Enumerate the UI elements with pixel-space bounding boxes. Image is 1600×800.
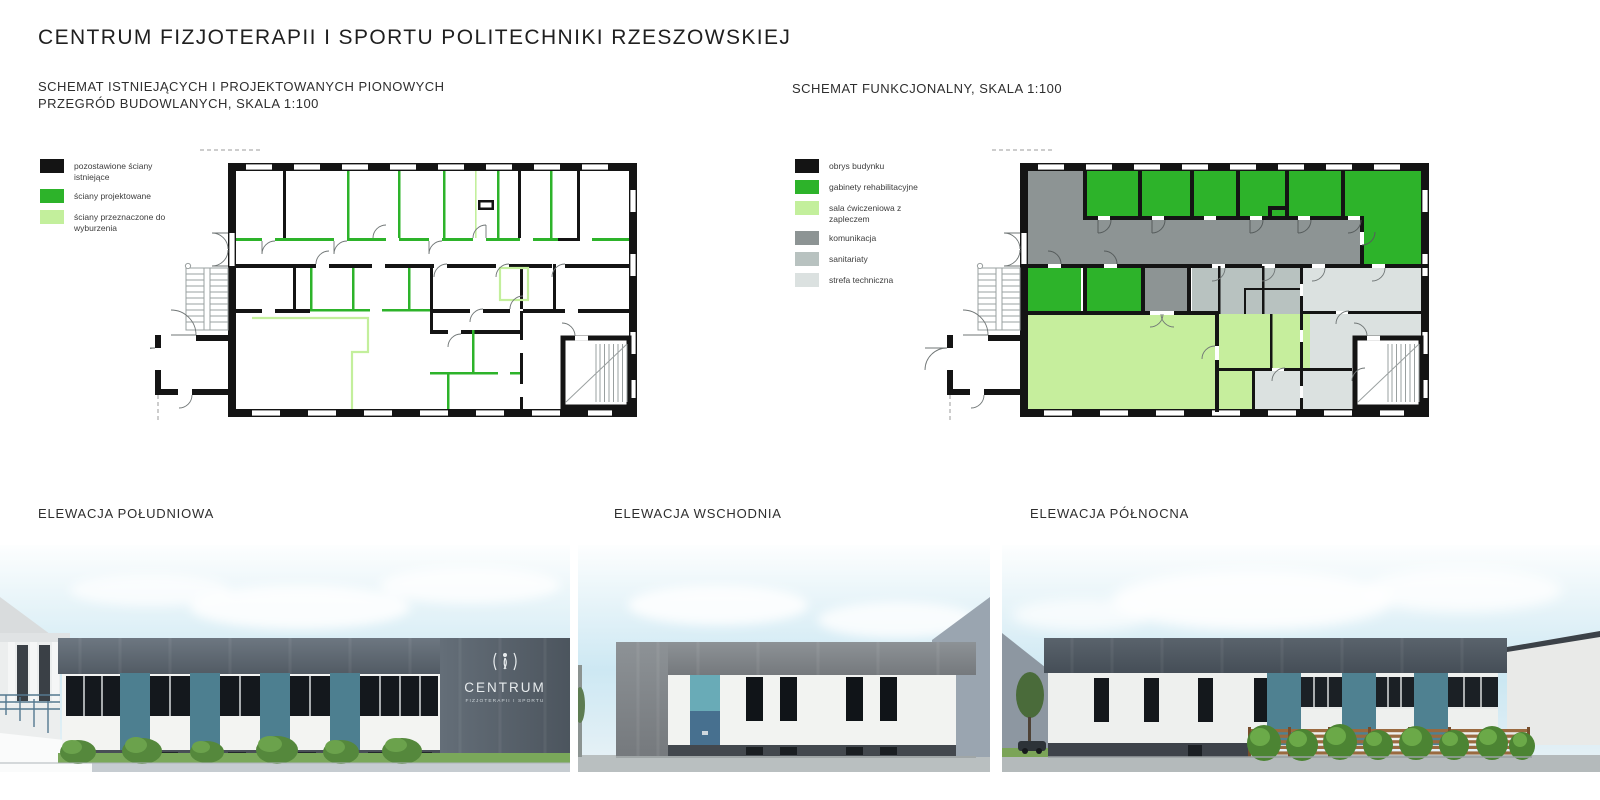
legend-swatch-existing-walls <box>40 159 64 173</box>
plan-annex <box>150 310 230 408</box>
floor-plan-functional-schematic <box>920 130 1430 427</box>
render-north-elevation <box>1002 545 1600 772</box>
right-background-building <box>1507 631 1600 745</box>
plan-corridor-walls <box>236 238 629 268</box>
window-strips <box>1301 677 1498 709</box>
functional-plan-drawing <box>920 130 1430 422</box>
legend-swatch-demolition-walls <box>40 210 64 224</box>
walls-schematic-title: SCHEMAT ISTNIEJĄCYCH I PROJEKTOWANYCH PI… <box>38 78 468 112</box>
functional-schematic-title: SCHEMAT FUNKCJONALNY, SKALA 1:100 <box>792 80 1212 97</box>
plan-annex <box>925 310 1022 408</box>
legend-swatch-sanitary <box>795 252 819 266</box>
plinth <box>668 745 956 757</box>
plan-exterior-stair <box>185 263 228 330</box>
plan-bottom-room-walls <box>430 311 523 409</box>
door-teal-panel <box>690 675 720 711</box>
render-south-elevation: CENTRUM FIZJOTERAPII I SPORTU <box>0 545 570 772</box>
elevation-label-north: ELEWACJA PÓŁNOCNA <box>1030 506 1189 521</box>
roof-band <box>1044 638 1507 673</box>
floor-plan-walls-schematic <box>150 130 650 427</box>
legend-swatch-outline <box>795 159 819 173</box>
plinth <box>1048 743 1250 757</box>
east-elevation-drawing <box>578 545 990 772</box>
north-elevation-drawing <box>1002 545 1600 772</box>
plan-stair-room <box>1355 336 1421 407</box>
walls-plan-drawing <box>150 130 650 422</box>
walls-schematic-title-line1: SCHEMAT ISTNIEJĄCYCH I PROJEKTOWANYCH PI… <box>38 78 468 95</box>
sign-name: CENTRUM <box>464 680 546 695</box>
plan-top-room-partitions <box>283 171 580 238</box>
render-east-elevation <box>578 545 990 772</box>
plan-demolition-walls <box>252 318 368 409</box>
sign-subtitle: FIZJOTERAPII I SPORTU <box>466 698 545 704</box>
elevation-label-south: ELEWACJA POŁUDNIOWA <box>38 506 214 521</box>
plan-middle-room-walls <box>236 264 629 332</box>
plan-exterior-stair <box>977 263 1020 330</box>
page-title: CENTRUM FIZJOTERAPII I SPORTU POLITECHNI… <box>38 26 791 50</box>
elevation-label-east: ELEWACJA WSCHODNIA <box>614 506 782 521</box>
plinth-door <box>1188 745 1202 757</box>
legend-swatch-exercise-room <box>795 201 819 215</box>
tree <box>1016 672 1044 718</box>
walls-schematic-title-line2: PRZEGRÓD BUDOWLANYCH, SKALA 1:100 <box>38 95 468 112</box>
legend-swatch-circulation <box>795 231 819 245</box>
legend-swatch-technical <box>795 273 819 287</box>
plan-stair-room <box>563 336 629 407</box>
legend-swatch-projected-walls <box>40 189 64 203</box>
south-elevation-drawing: CENTRUM FIZJOTERAPII I SPORTU <box>0 545 570 772</box>
door-sign <box>702 731 708 735</box>
legend-swatch-rehab-rooms <box>795 180 819 194</box>
presentation-board: CENTRUM FIZJOTERAPII I SPORTU POLITECHNI… <box>0 0 1600 800</box>
